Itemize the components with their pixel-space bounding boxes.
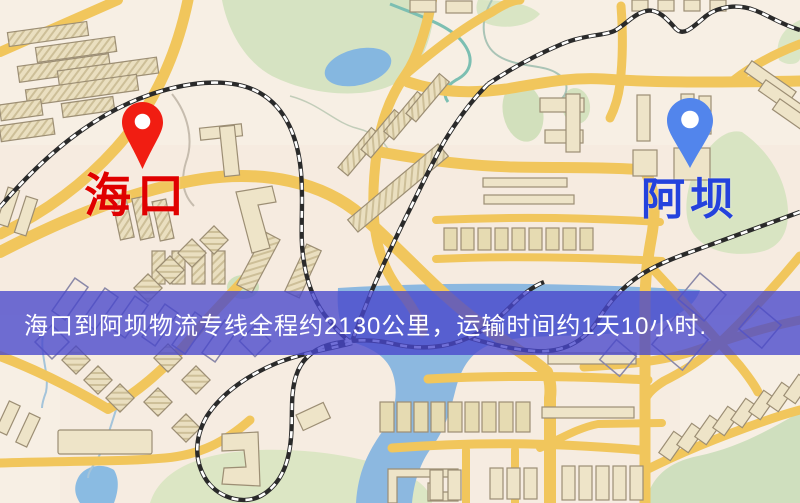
- street-map-art: [0, 0, 800, 503]
- route-info-banner: 海口到阿坝物流专线全程约2130公里，运输时间约1天10小时.: [0, 291, 800, 355]
- destination-city-label: 阿坝: [641, 178, 739, 222]
- origin-pin-icon[interactable]: [122, 102, 163, 169]
- map-canvas: 海口 阿坝 海口到阿坝物流专线全程约2130公里，运输时间约1天10小时.: [0, 0, 800, 503]
- route-info-text: 海口到阿坝物流专线全程约2130公里，运输时间约1天10小时.: [24, 306, 707, 341]
- destination-pin-icon[interactable]: [667, 98, 713, 168]
- origin-city-label: 海口: [84, 174, 190, 221]
